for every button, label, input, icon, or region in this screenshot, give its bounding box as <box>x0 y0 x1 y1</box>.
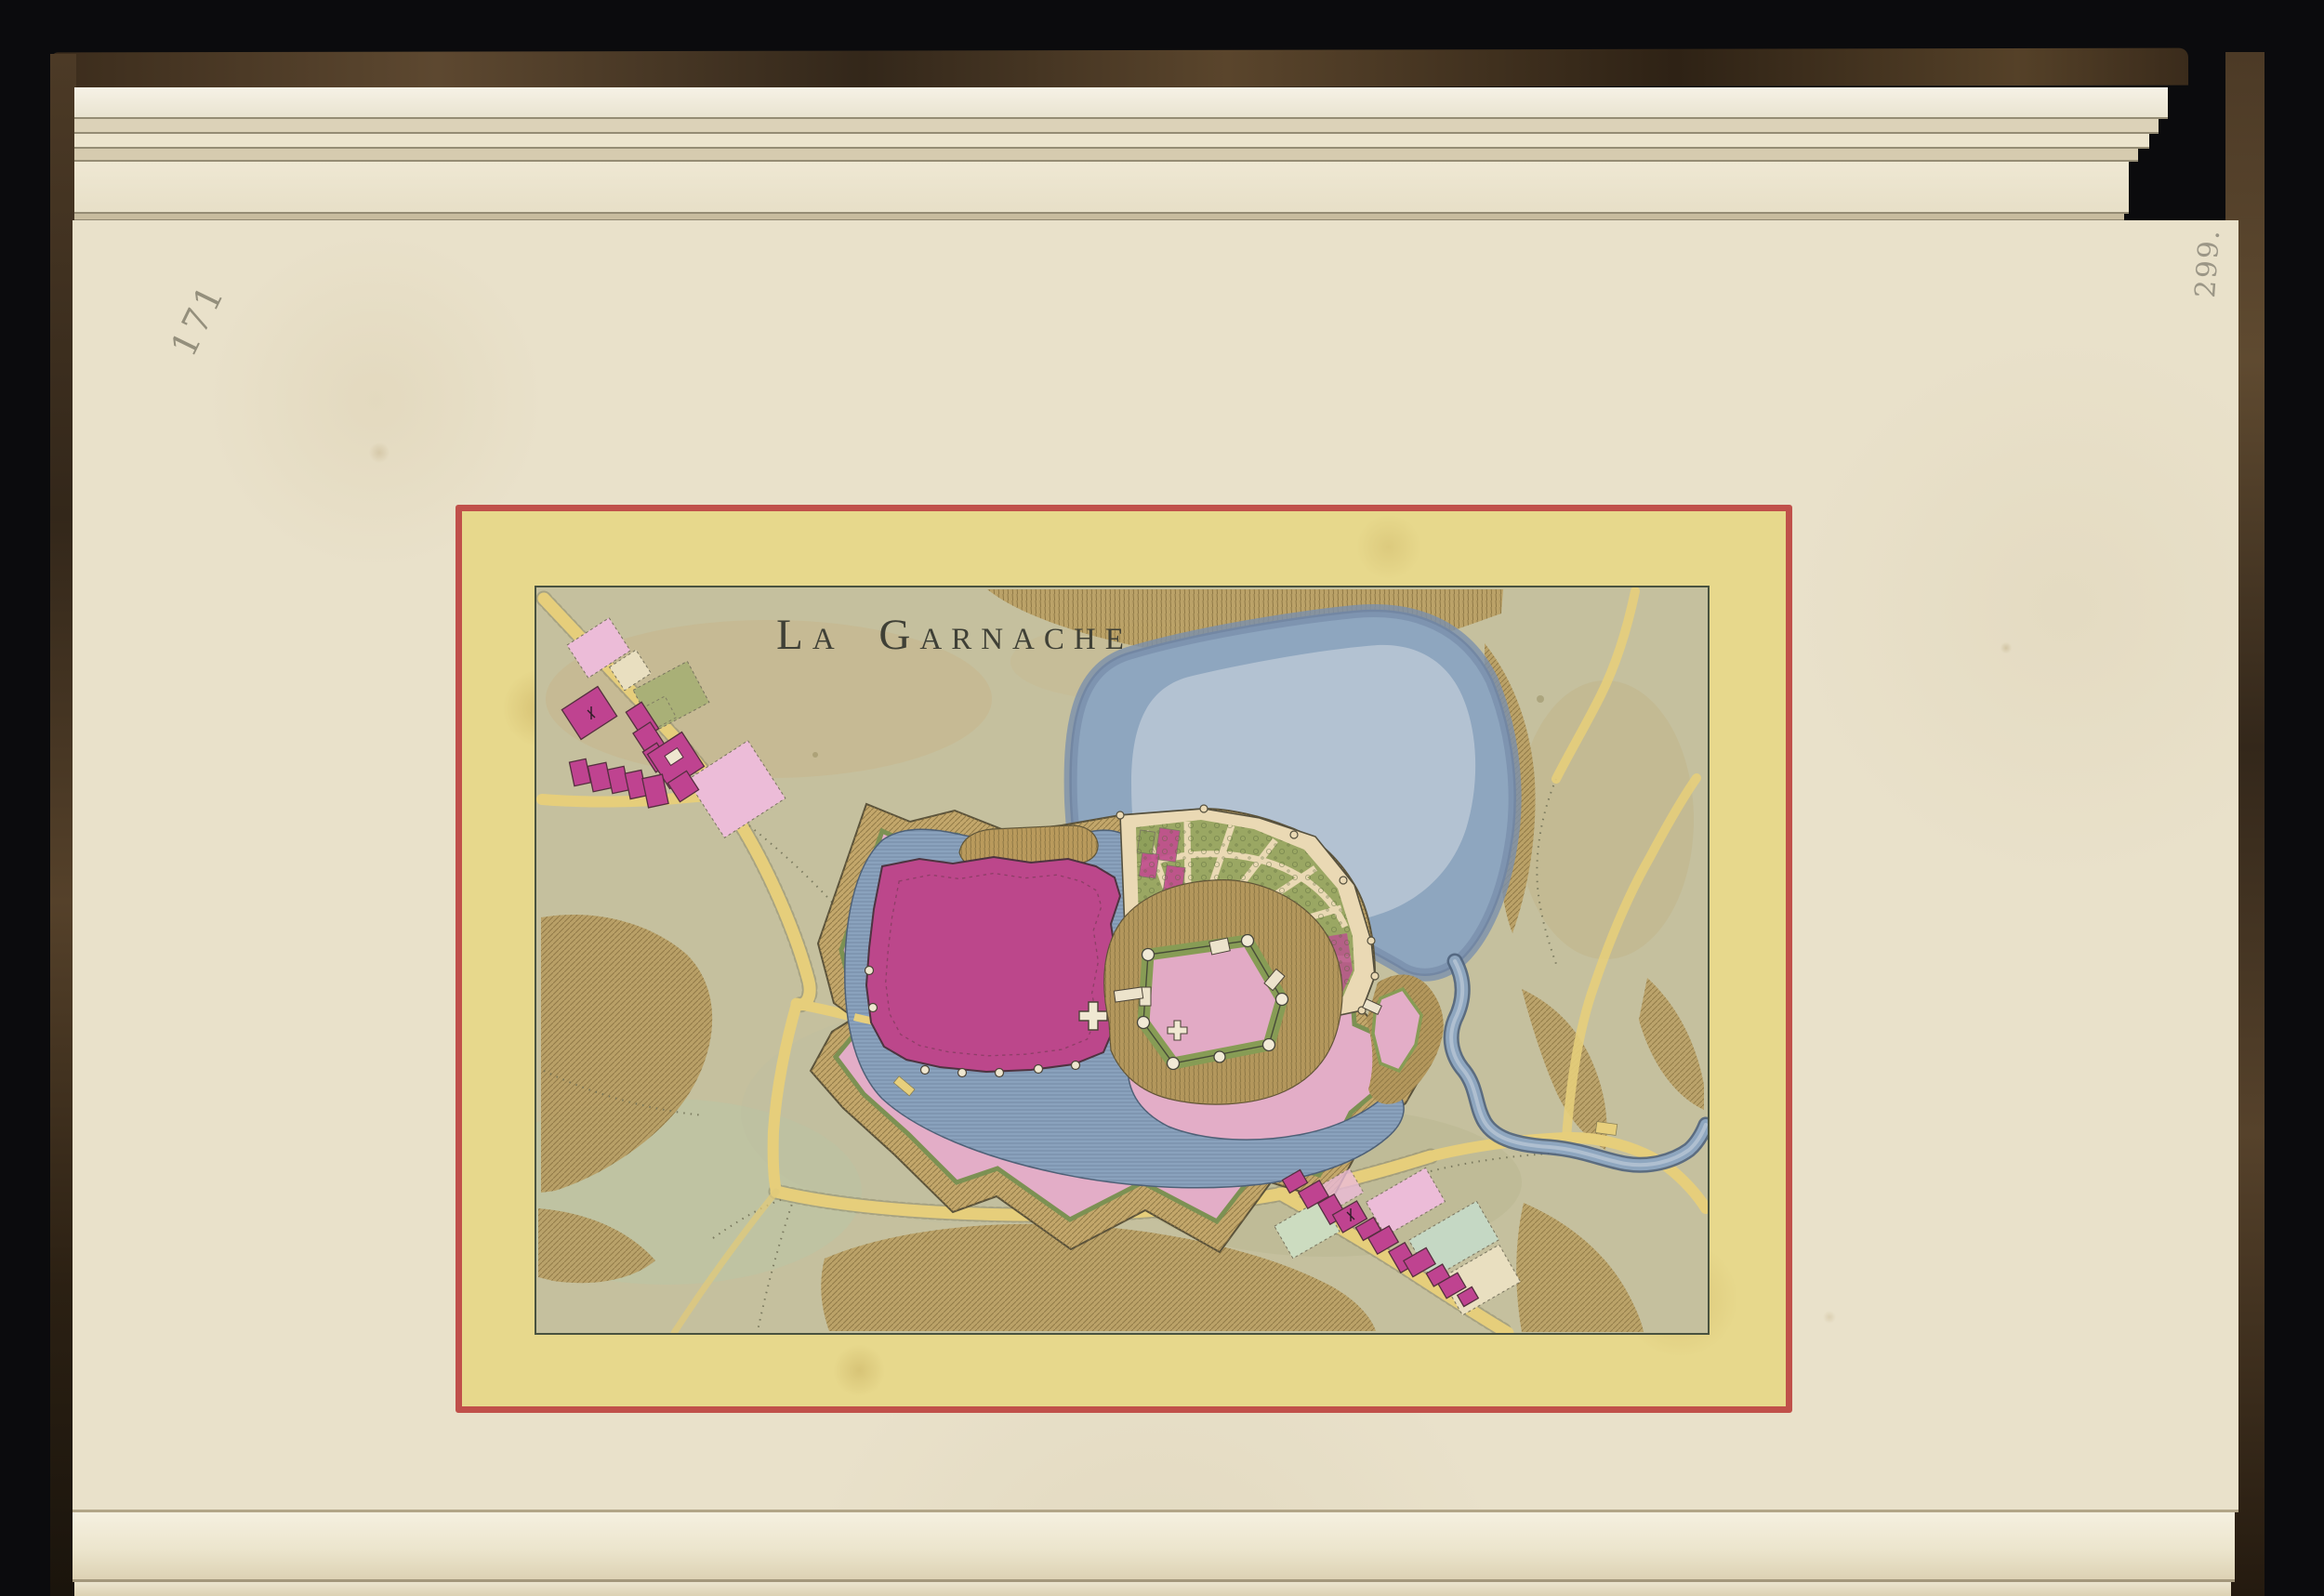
photo-backdrop: { "book": { "pencil_page_number": "171",… <box>0 0 2324 1596</box>
page-stack-edge <box>74 119 2159 134</box>
book-cover-top-edge <box>52 48 2188 90</box>
map-svg: La Garnache <box>536 587 1708 1333</box>
pencil-edge-number: 299. <box>2189 231 2226 298</box>
page-stack-edge <box>74 149 2138 162</box>
map-title: La Garnache <box>776 611 1133 659</box>
stream-bridge <box>1595 1122 1617 1136</box>
map-plate: La Garnache <box>456 505 1792 1413</box>
page-stack-edge <box>74 87 2168 119</box>
page-stack-edge <box>74 214 2124 220</box>
east-ravelin <box>1363 975 1444 1104</box>
castle <box>1104 880 1342 1104</box>
page-beneath-edge <box>73 1512 2235 1579</box>
walled-town <box>865 857 1121 1077</box>
map-engraving: La Garnache <box>535 586 1710 1335</box>
page-stack-edge <box>74 162 2129 214</box>
page-beneath-edge <box>74 1582 2231 1596</box>
page-stack-edge <box>74 134 2149 149</box>
